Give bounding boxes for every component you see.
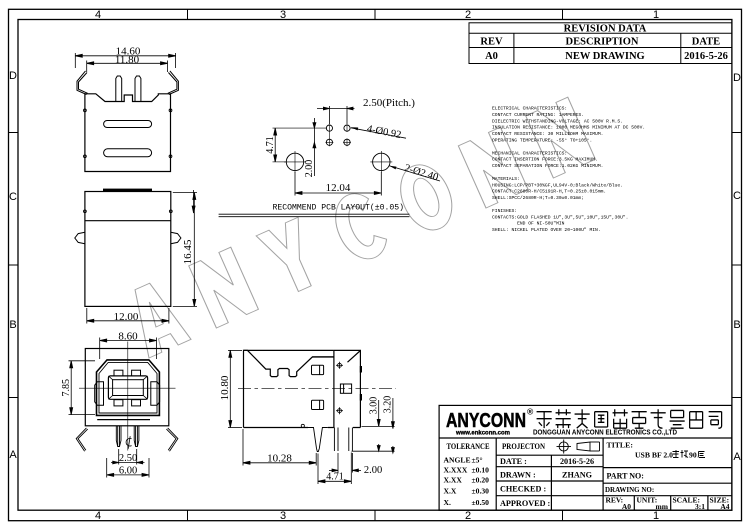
svg-text:7.85: 7.85 <box>61 379 72 397</box>
svg-text:4: 4 <box>95 510 101 522</box>
svg-text:TOLERANCE: TOLERANCE <box>447 442 490 451</box>
svg-text:10.28: 10.28 <box>267 453 292 465</box>
svg-text:X.XX: X.XX <box>444 476 463 485</box>
svg-text:REV: REV <box>480 37 503 48</box>
svg-text:12.00: 12.00 <box>114 311 139 323</box>
svg-text:D: D <box>733 72 741 84</box>
svg-text:CONTACT CURRENT RATING: 1AMPER: CONTACT CURRENT RATING: 1AMPERES. <box>492 112 584 118</box>
svg-text:8.60: 8.60 <box>118 331 138 343</box>
svg-text:2: 2 <box>465 9 471 21</box>
svg-text:INSULATION RESISTANCE: 1000 ME: INSULATION RESISTANCE: 1000 MEGOHMS MINI… <box>492 125 645 131</box>
svg-text:DATE :: DATE : <box>500 457 527 466</box>
svg-text:CHECKED :: CHECKED : <box>500 485 546 494</box>
svg-text:4.71: 4.71 <box>265 136 276 154</box>
svg-text:HOUSING:LCP/PBT+30%GF,UL94V-0;: HOUSING:LCP/PBT+30%GF,UL94V-0;Black/Whit… <box>492 182 623 188</box>
svg-text:X.: X. <box>444 498 451 507</box>
svg-text:3.00: 3.00 <box>369 397 380 415</box>
svg-text:REV:: REV: <box>606 496 624 505</box>
svg-text:CONTACT RESISTANCE: 30 MILLIOH: CONTACT RESISTANCE: 30 MILLIOHM MAXIMUM. <box>492 131 603 137</box>
svg-text:4.71: 4.71 <box>326 471 344 482</box>
svg-text:±0.20: ±0.20 <box>472 476 490 485</box>
svg-text:DIELECTRIC WITHSTANDING-VOLTAG: DIELECTRIC WITHSTANDING-VOLTAGE: AC 500V… <box>492 118 623 124</box>
svg-text:MECHANICAL CHARACTERISTICS:: MECHANICAL CHARACTERISTICS: <box>492 150 567 156</box>
svg-text:B: B <box>9 319 16 331</box>
svg-text:10.80: 10.80 <box>219 375 231 400</box>
svg-text:PART NO:: PART NO: <box>607 472 644 481</box>
svg-text:C: C <box>733 190 741 202</box>
svg-text:mm: mm <box>656 502 669 511</box>
svg-text:D: D <box>9 70 17 82</box>
svg-text:CONTACTS:GOLD FLASHED 1U",3U",: CONTACTS:GOLD FLASHED 1U",3U",5U",10U",1… <box>492 214 628 220</box>
svg-text:CONTACT:C2680R-H/C5191R-H,T=0.: CONTACT:C2680R-H/C5191R-H,T=0.25±0.015mm… <box>492 189 606 195</box>
svg-text:12.04: 12.04 <box>326 182 351 194</box>
svg-text:UNIT:: UNIT: <box>637 496 658 505</box>
svg-text:11.80: 11.80 <box>115 54 140 66</box>
svg-text:ANYCONN: ANYCONN <box>446 409 526 432</box>
svg-text:3:1: 3:1 <box>695 502 705 511</box>
svg-text:6.00: 6.00 <box>119 466 137 477</box>
svg-text:C: C <box>9 191 17 203</box>
svg-text:DATE: DATE <box>692 37 720 48</box>
svg-text:X.XXX: X.XXX <box>444 466 468 475</box>
svg-text:A: A <box>733 451 741 463</box>
svg-text:OPERATING TEMPERATURE: -55° T: OPERATING TEMPERATURE: -55° TO+105°. <box>492 138 592 144</box>
svg-text:ANGLE: ANGLE <box>444 455 471 464</box>
svg-text:TITLE:: TITLE: <box>607 441 633 450</box>
svg-text:±5°: ±5° <box>472 455 483 464</box>
svg-text:B: B <box>733 319 740 331</box>
svg-text:±0.50: ±0.50 <box>472 498 490 507</box>
svg-text:RECOMMEND PCB LAYOUT(±0.05): RECOMMEND PCB LAYOUT(±0.05) <box>273 203 405 213</box>
svg-text:CONTACT INSERTION FORCE:3.5KG: CONTACT INSERTION FORCE:3.5KG MAXIMUM. <box>492 157 598 163</box>
svg-text:±0.10: ±0.10 <box>472 466 490 475</box>
svg-text:2: 2 <box>465 510 471 522</box>
svg-text:www.enkconn.com: www.enkconn.com <box>455 431 510 437</box>
svg-text:A4: A4 <box>720 502 729 511</box>
svg-text:DRAWING NO:: DRAWING NO: <box>605 486 654 494</box>
svg-text:NEW DRAWING: NEW DRAWING <box>565 51 644 62</box>
svg-text:A0: A0 <box>622 502 631 511</box>
svg-text:DONGGUAN ANYCONN ELECTRONICS: DONGGUAN ANYCONN ELECTRONICS CO.,LTD <box>533 428 677 437</box>
svg-text:ELECTRICAL CHARACTERISTICS:: ELECTRICAL CHARACTERISTICS: <box>492 106 567 112</box>
svg-text:REVISION DATA: REVISION DATA <box>564 23 647 34</box>
svg-text:APPROVED :: APPROVED : <box>500 499 550 508</box>
svg-text:MATERIALS:: MATERIALS: <box>492 176 520 182</box>
svg-text:FINISHES:: FINISHES: <box>492 208 517 214</box>
svg-text:±0.30: ±0.30 <box>472 486 490 495</box>
svg-text:CONTACT SEPARATION FORCE:1.02K: CONTACT SEPARATION FORCE:1.02KG MINIMUM. <box>492 163 603 169</box>
svg-text:®: ® <box>527 407 534 417</box>
svg-text:90: 90 <box>689 451 697 460</box>
svg-text:3.20: 3.20 <box>382 396 393 414</box>
svg-text:16.45: 16.45 <box>182 239 194 264</box>
svg-text:1: 1 <box>653 9 659 21</box>
svg-text:ZHANG: ZHANG <box>562 471 593 480</box>
svg-text:DRAWN :: DRAWN : <box>500 471 536 480</box>
svg-text:SHELL: NICKEL PLATED OVER 20~1: SHELL: NICKEL PLATED OVER 20~100U" MIN. <box>492 227 601 233</box>
svg-text:A0: A0 <box>485 51 498 62</box>
svg-text:4: 4 <box>95 9 101 21</box>
svg-text:SHELL:SPCC/2680R-H;T=0.30±0.01: SHELL:SPCC/2680R-H;T=0.30±0.01mm; <box>492 195 584 201</box>
svg-text:A: A <box>9 449 17 461</box>
svg-text:2.00: 2.00 <box>364 465 382 476</box>
svg-text:DESCRIPTION: DESCRIPTION <box>566 37 639 48</box>
svg-text:2016-5-26: 2016-5-26 <box>684 51 728 62</box>
svg-text:USB BF 2.0: USB BF 2.0 <box>635 451 673 460</box>
svg-text:3: 3 <box>280 9 286 21</box>
svg-text:2.50(Pitch.): 2.50(Pitch.) <box>363 97 415 109</box>
svg-text:PROJECTON: PROJECTON <box>502 442 545 451</box>
svg-text:2.50: 2.50 <box>119 453 137 464</box>
svg-text:2016-5-26: 2016-5-26 <box>560 457 594 466</box>
svg-text:2.00: 2.00 <box>304 160 315 178</box>
svg-text:1: 1 <box>653 510 659 522</box>
svg-text:3: 3 <box>280 510 286 522</box>
svg-text:END OF NI-50U"MIN: END OF NI-50U"MIN <box>517 221 565 227</box>
svg-text:X.X: X.X <box>444 486 457 495</box>
